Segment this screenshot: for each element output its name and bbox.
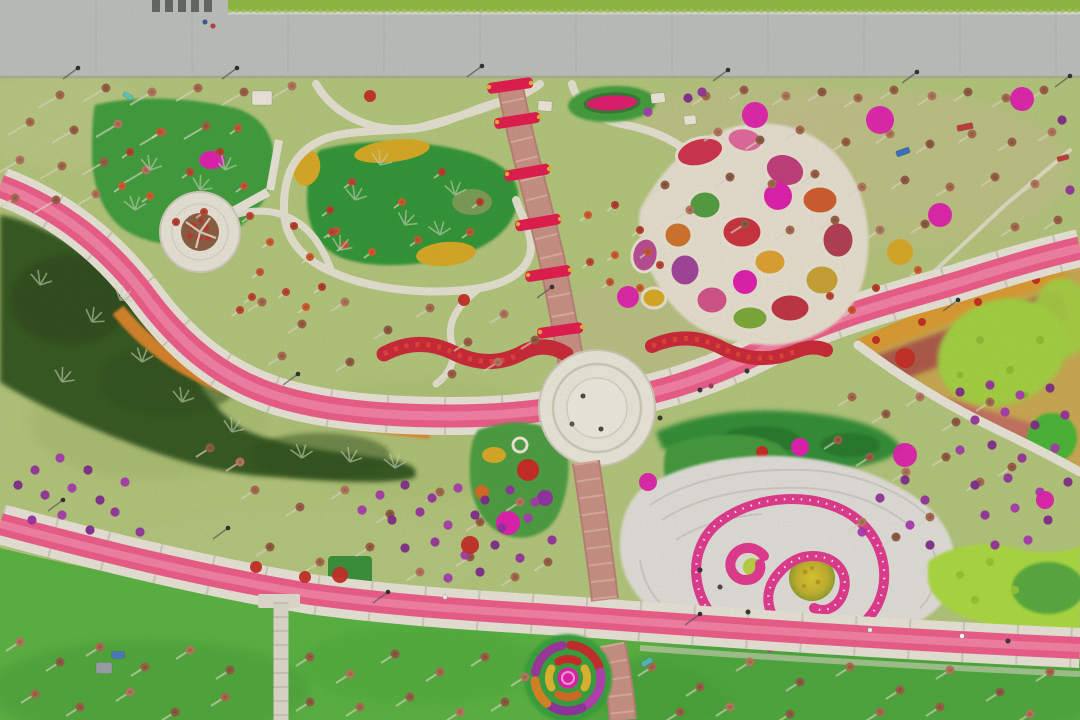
aerial-park-photo xyxy=(0,0,1080,720)
photo-grain-light xyxy=(0,0,1080,720)
